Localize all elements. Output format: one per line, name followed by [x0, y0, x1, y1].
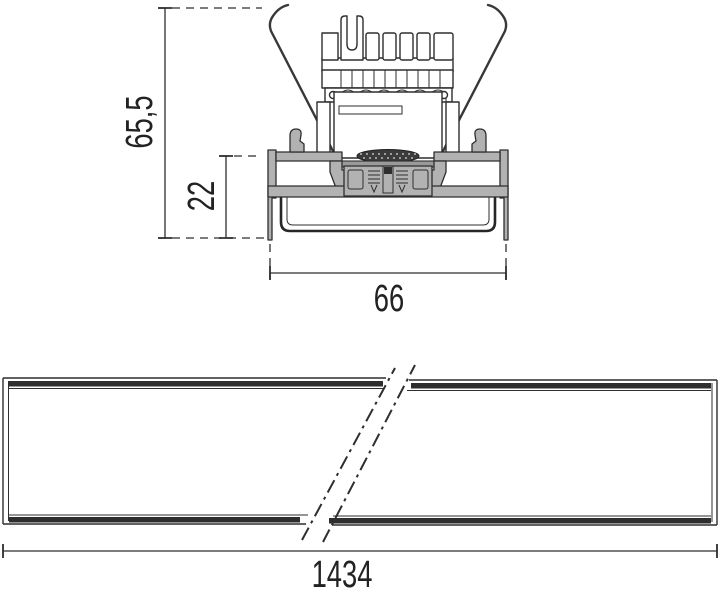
- break-lines-icon: [302, 365, 415, 542]
- spring-hook-right: [472, 129, 486, 152]
- luminaire-dimension-drawing: 65,5 22 66: [0, 0, 720, 590]
- dimension-label-length: 1434: [312, 554, 373, 590]
- dimension-label-profile-width: 66: [374, 278, 404, 320]
- dimension-label-overall-height: 65,5: [119, 95, 161, 148]
- side-bracket-right: [446, 102, 459, 158]
- profile-flange-left: [276, 152, 342, 161]
- dimension-recess-depth: 22: [181, 156, 262, 238]
- elevation-right-half: [329, 380, 717, 525]
- driver-housing: [334, 92, 442, 158]
- diffuser-lens: [281, 197, 495, 231]
- technical-drawing-canvas: 65,5 22 66: [0, 0, 720, 590]
- dimension-profile-width: 66: [270, 244, 506, 320]
- side-elevation-view: 1434: [3, 365, 717, 590]
- dimension-label-recess-depth: 22: [181, 181, 223, 211]
- heatsink-fins: [322, 16, 453, 72]
- profile-flange-right: [434, 152, 500, 161]
- dimension-length: 1434: [3, 544, 717, 590]
- elevation-left-half: [3, 378, 386, 524]
- side-bracket-left: [317, 102, 330, 158]
- cross-section-view: 65,5 22 66: [119, 5, 508, 320]
- spring-hook-left: [290, 129, 304, 152]
